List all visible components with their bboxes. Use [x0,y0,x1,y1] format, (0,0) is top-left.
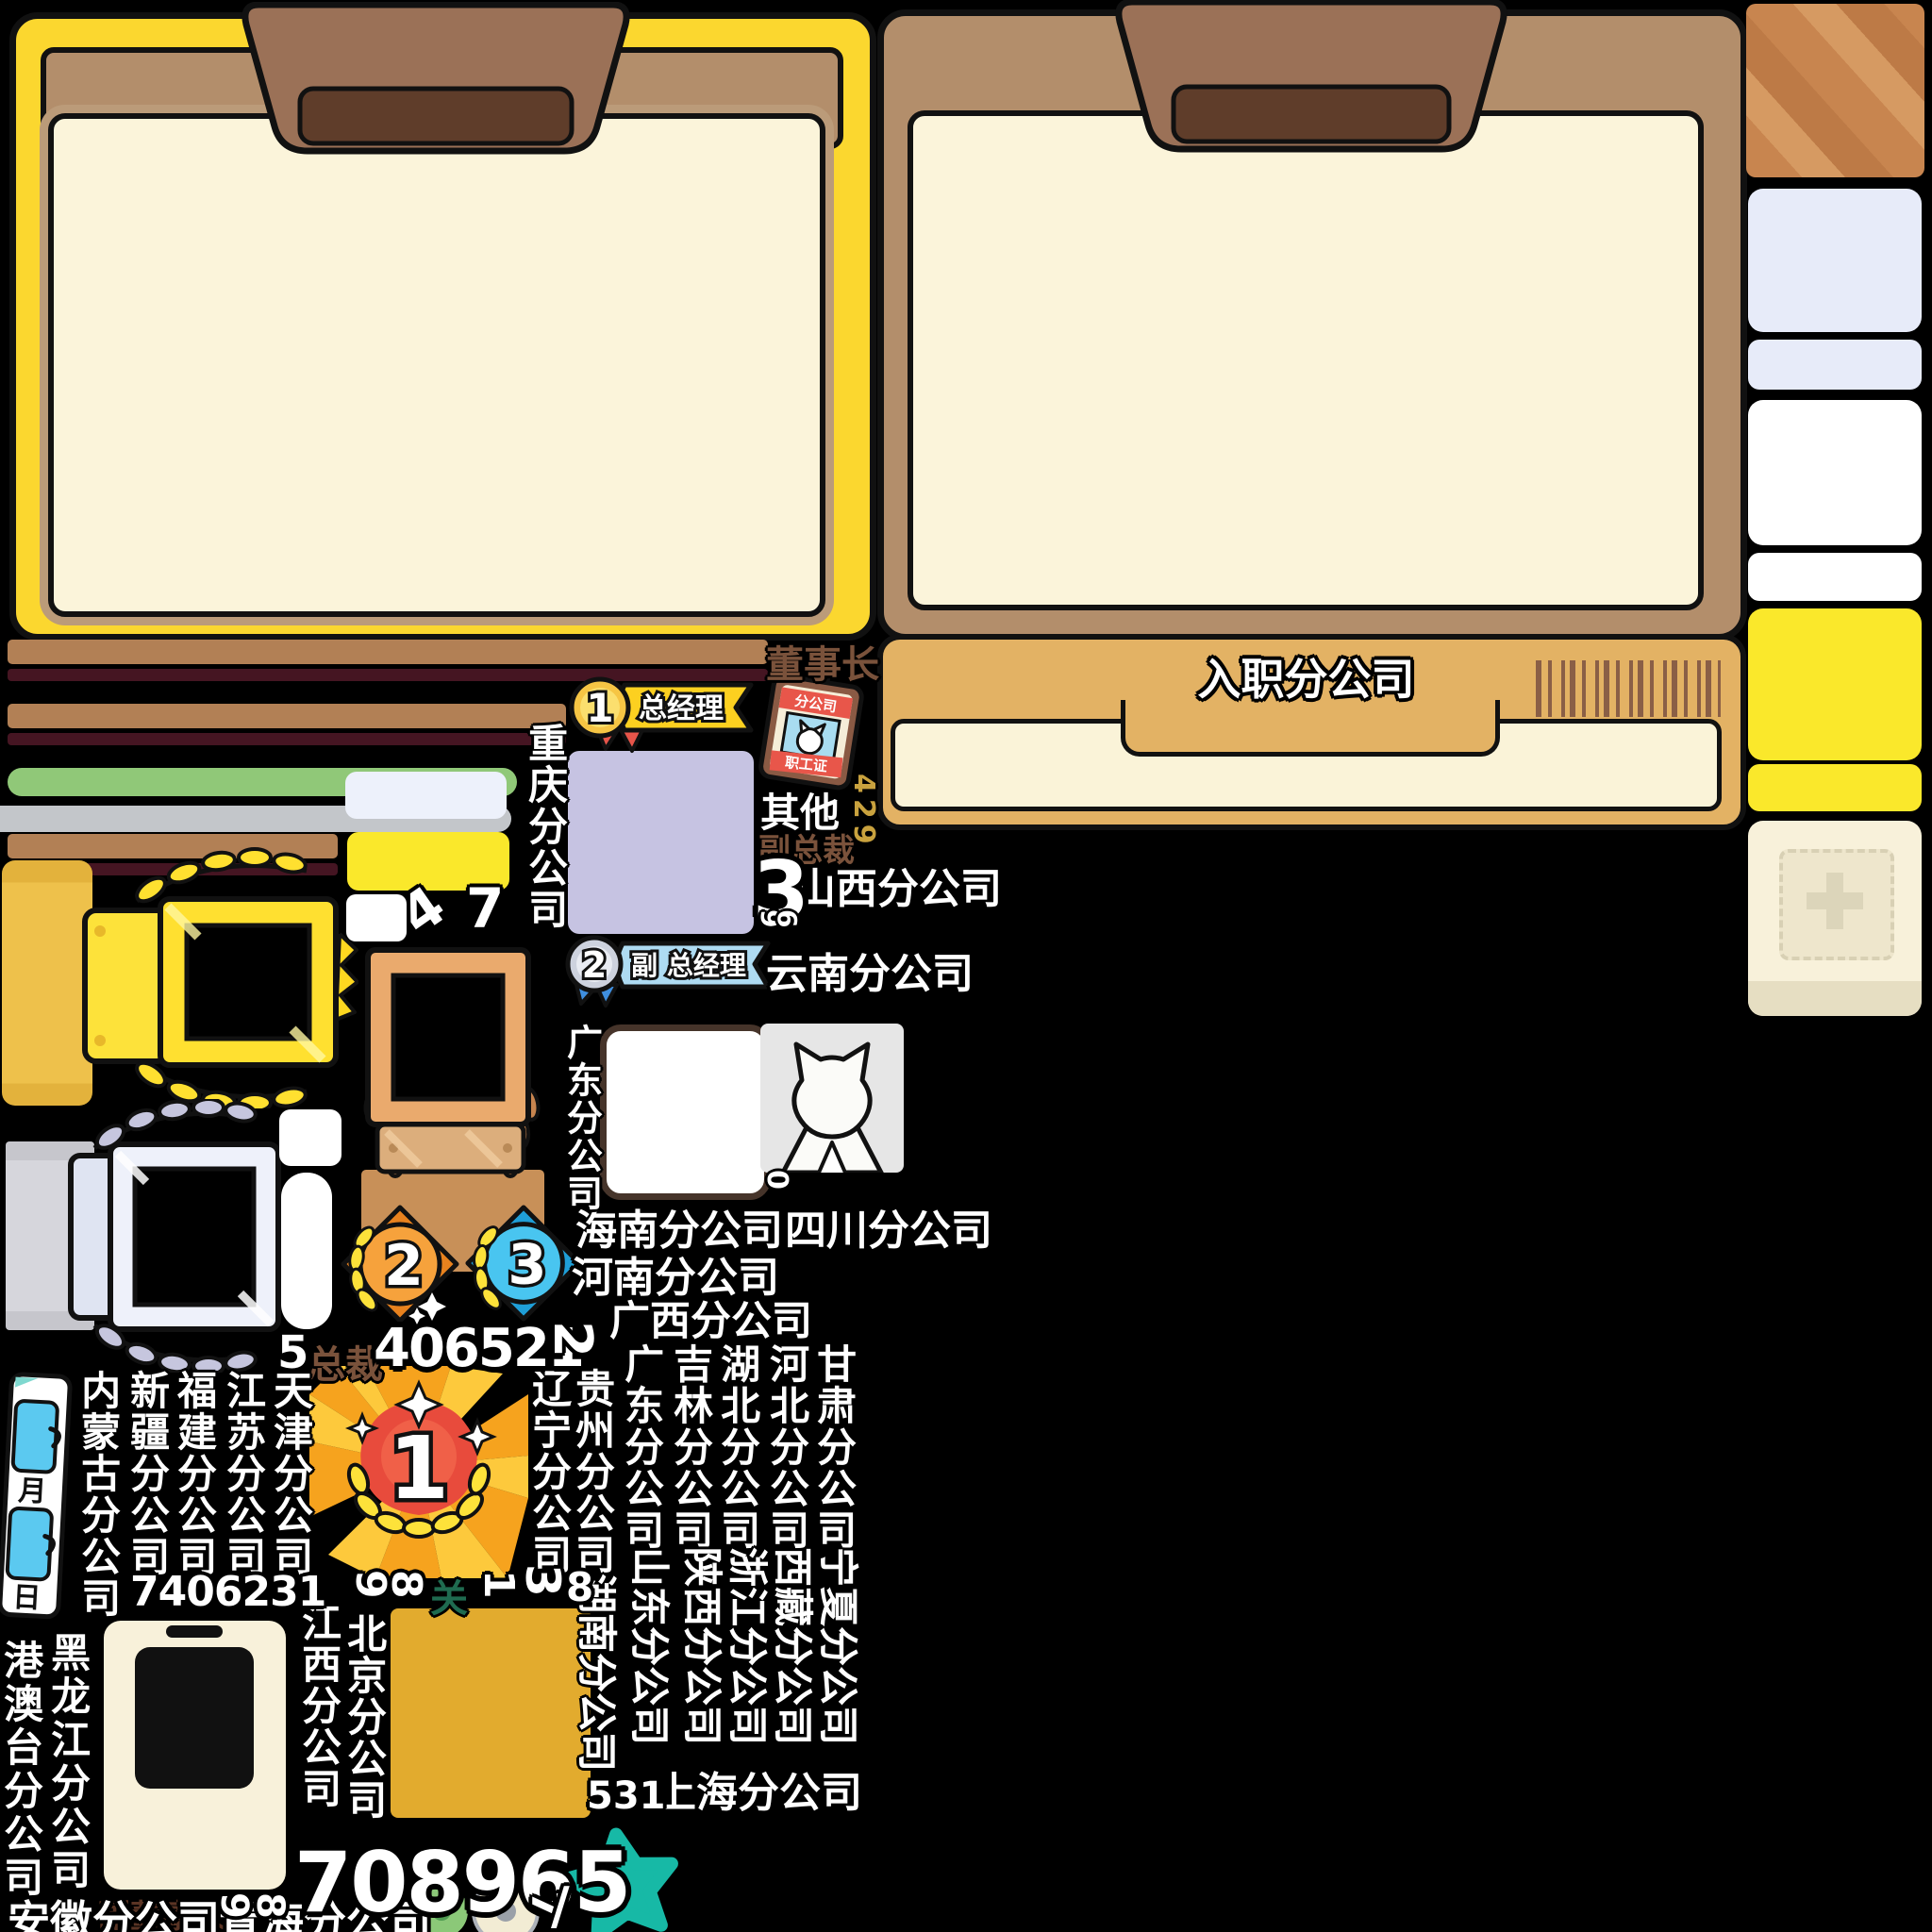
branch-guizhou: 贵州分公司 [572,1368,613,1575]
rank-chairman: 董事长 [766,634,879,689]
tile-lavender-square [568,751,754,934]
plus-icon-v [1826,873,1843,929]
branch-hebei: 河北分公司 [766,1343,808,1551]
panel-gold-tab [238,2,634,155]
branch-jiangxi: 江西分公司 [298,1602,340,1809]
photo-frame-white [600,1024,771,1200]
branch-sichuan: 四川分公司 [785,1196,992,1257]
star2-number: 2 [384,1233,424,1299]
badge-card-sprite [104,1621,286,1890]
number-7: 7 [466,881,504,936]
tile-brown-striped [1746,4,1924,177]
badge-deputy-general-manager: 副 总经理 2 [562,934,779,1009]
bar-maroon-2 [8,733,566,745]
bandage-bottom-strip [1748,981,1922,1016]
number-8-sideways-b: 8 [251,1892,289,1919]
label-pass: 关 [430,1568,468,1623]
star3-number: 3 [508,1232,546,1297]
branch-jilin: 吉林分公司 [670,1343,711,1551]
number-6-small: 6 [774,909,800,927]
card-slot [166,1625,223,1638]
card-black-window [135,1647,254,1789]
tile-lavender-lg [1748,189,1922,332]
tile-bluewhite [345,772,507,819]
tile-bandage [1748,821,1922,1016]
label-other: 其他 [760,781,840,839]
tile-yellow-lg [1748,608,1922,760]
bar-tan-1 [8,640,768,664]
branch-gansu: 甘肃分公司 [813,1343,855,1551]
panel-gold-content [48,113,825,617]
branch-shanghai: 上海分公司 [655,1758,862,1819]
branch-yunnan: 云南分公司 [766,940,974,1000]
dgm-label: 副 总经理 [631,950,746,981]
branch-beijing: 北京分公司 [343,1613,385,1821]
branch-jiangsu: 江苏分公司 [223,1370,264,1577]
white-square-a [279,1109,341,1166]
tile-amber-square [391,1608,591,1818]
star-medal-2: 2 [338,1202,462,1326]
number-1-sideways: 1 [477,1570,519,1599]
number-5: 5 [277,1330,308,1375]
number-2-sideways: 2 [545,1321,598,1357]
gm-medal-number: 1 [586,685,613,731]
big-first-place-medal: 1 [309,1366,528,1578]
gm-label: 总经理 [639,692,724,725]
number-8-sideways: 8 [385,1570,426,1599]
slash-glyph: / [551,1881,570,1932]
calendar-day-label: 日 [11,1581,42,1616]
branch-heilongjiang: 黑龙江分公司 [47,1632,89,1892]
branch-hubei: 湖北分公司 [717,1343,758,1551]
number-7406231: 7406231 [130,1572,325,1613]
calendar-icon: 月 日 [0,1364,82,1627]
panel-brown-tab [1111,0,1511,153]
branch-gangaotai: 港澳台分公司 [0,1640,42,1900]
gold-laurel-frame [57,844,358,1108]
branch-xinjiang: 新疆分公司 [126,1370,168,1577]
number-8: 8 [566,1568,593,1607]
branch-tianjin: 天津分公司 [270,1370,311,1577]
branch-neimenggu: 内蒙古分公司 [77,1370,119,1619]
tile-white-lg [1748,400,1922,545]
branch-liaoning: 辽宁分公司 [528,1368,570,1575]
star-medal-3: 3 [462,1202,585,1324]
join-branch-notch [1121,700,1500,757]
branch-shaanxi: 陕西分公司 [676,1547,734,1745]
dgm-medal-number: 2 [582,944,607,986]
panel-brown-content [908,110,1704,610]
tile-white-sm [1748,553,1922,601]
calendar-month-label: 月 [17,1474,47,1509]
number-3-sideways: 3 [519,1564,566,1597]
badge-general-manager: 总经理 1 [566,674,769,755]
branch-shandong: 山东分公司 [624,1547,681,1745]
number-9-sideways-b: 9 [215,1892,253,1919]
number-0-sideways: 0 [762,1170,791,1190]
branch-fujian: 福建分公司 [174,1370,215,1577]
number-708965: 708965 [294,1841,629,1924]
white-pill-bar [281,1173,332,1329]
bar-tan-2 [8,704,566,728]
sprite-atlas-stage: 入职分公司 总经理 1 副 总经理 2 分公司 [0,0,1932,1932]
number-531: 531 [587,1777,666,1815]
tile-yellow-sm [1748,764,1922,811]
branch-guangdong-a: 广东分公司 [562,1024,600,1212]
number-429: 429 [849,774,877,850]
cat-avatar [760,1024,904,1173]
silver-laurel-frame [52,1099,297,1373]
branch-guangxi: 广西分公司 [609,1289,812,1347]
tile-lavender-sm [1748,340,1922,390]
rank-president: 总裁 [308,1334,383,1389]
branch-shanxi: 山西分公司 [794,855,1002,915]
branch-chongqing: 重庆分公司 [525,723,566,930]
barcode-icon [1536,660,1721,717]
big-medal-number: 1 [389,1418,449,1519]
branch-guangdong-b: 广东分公司 [621,1343,662,1551]
